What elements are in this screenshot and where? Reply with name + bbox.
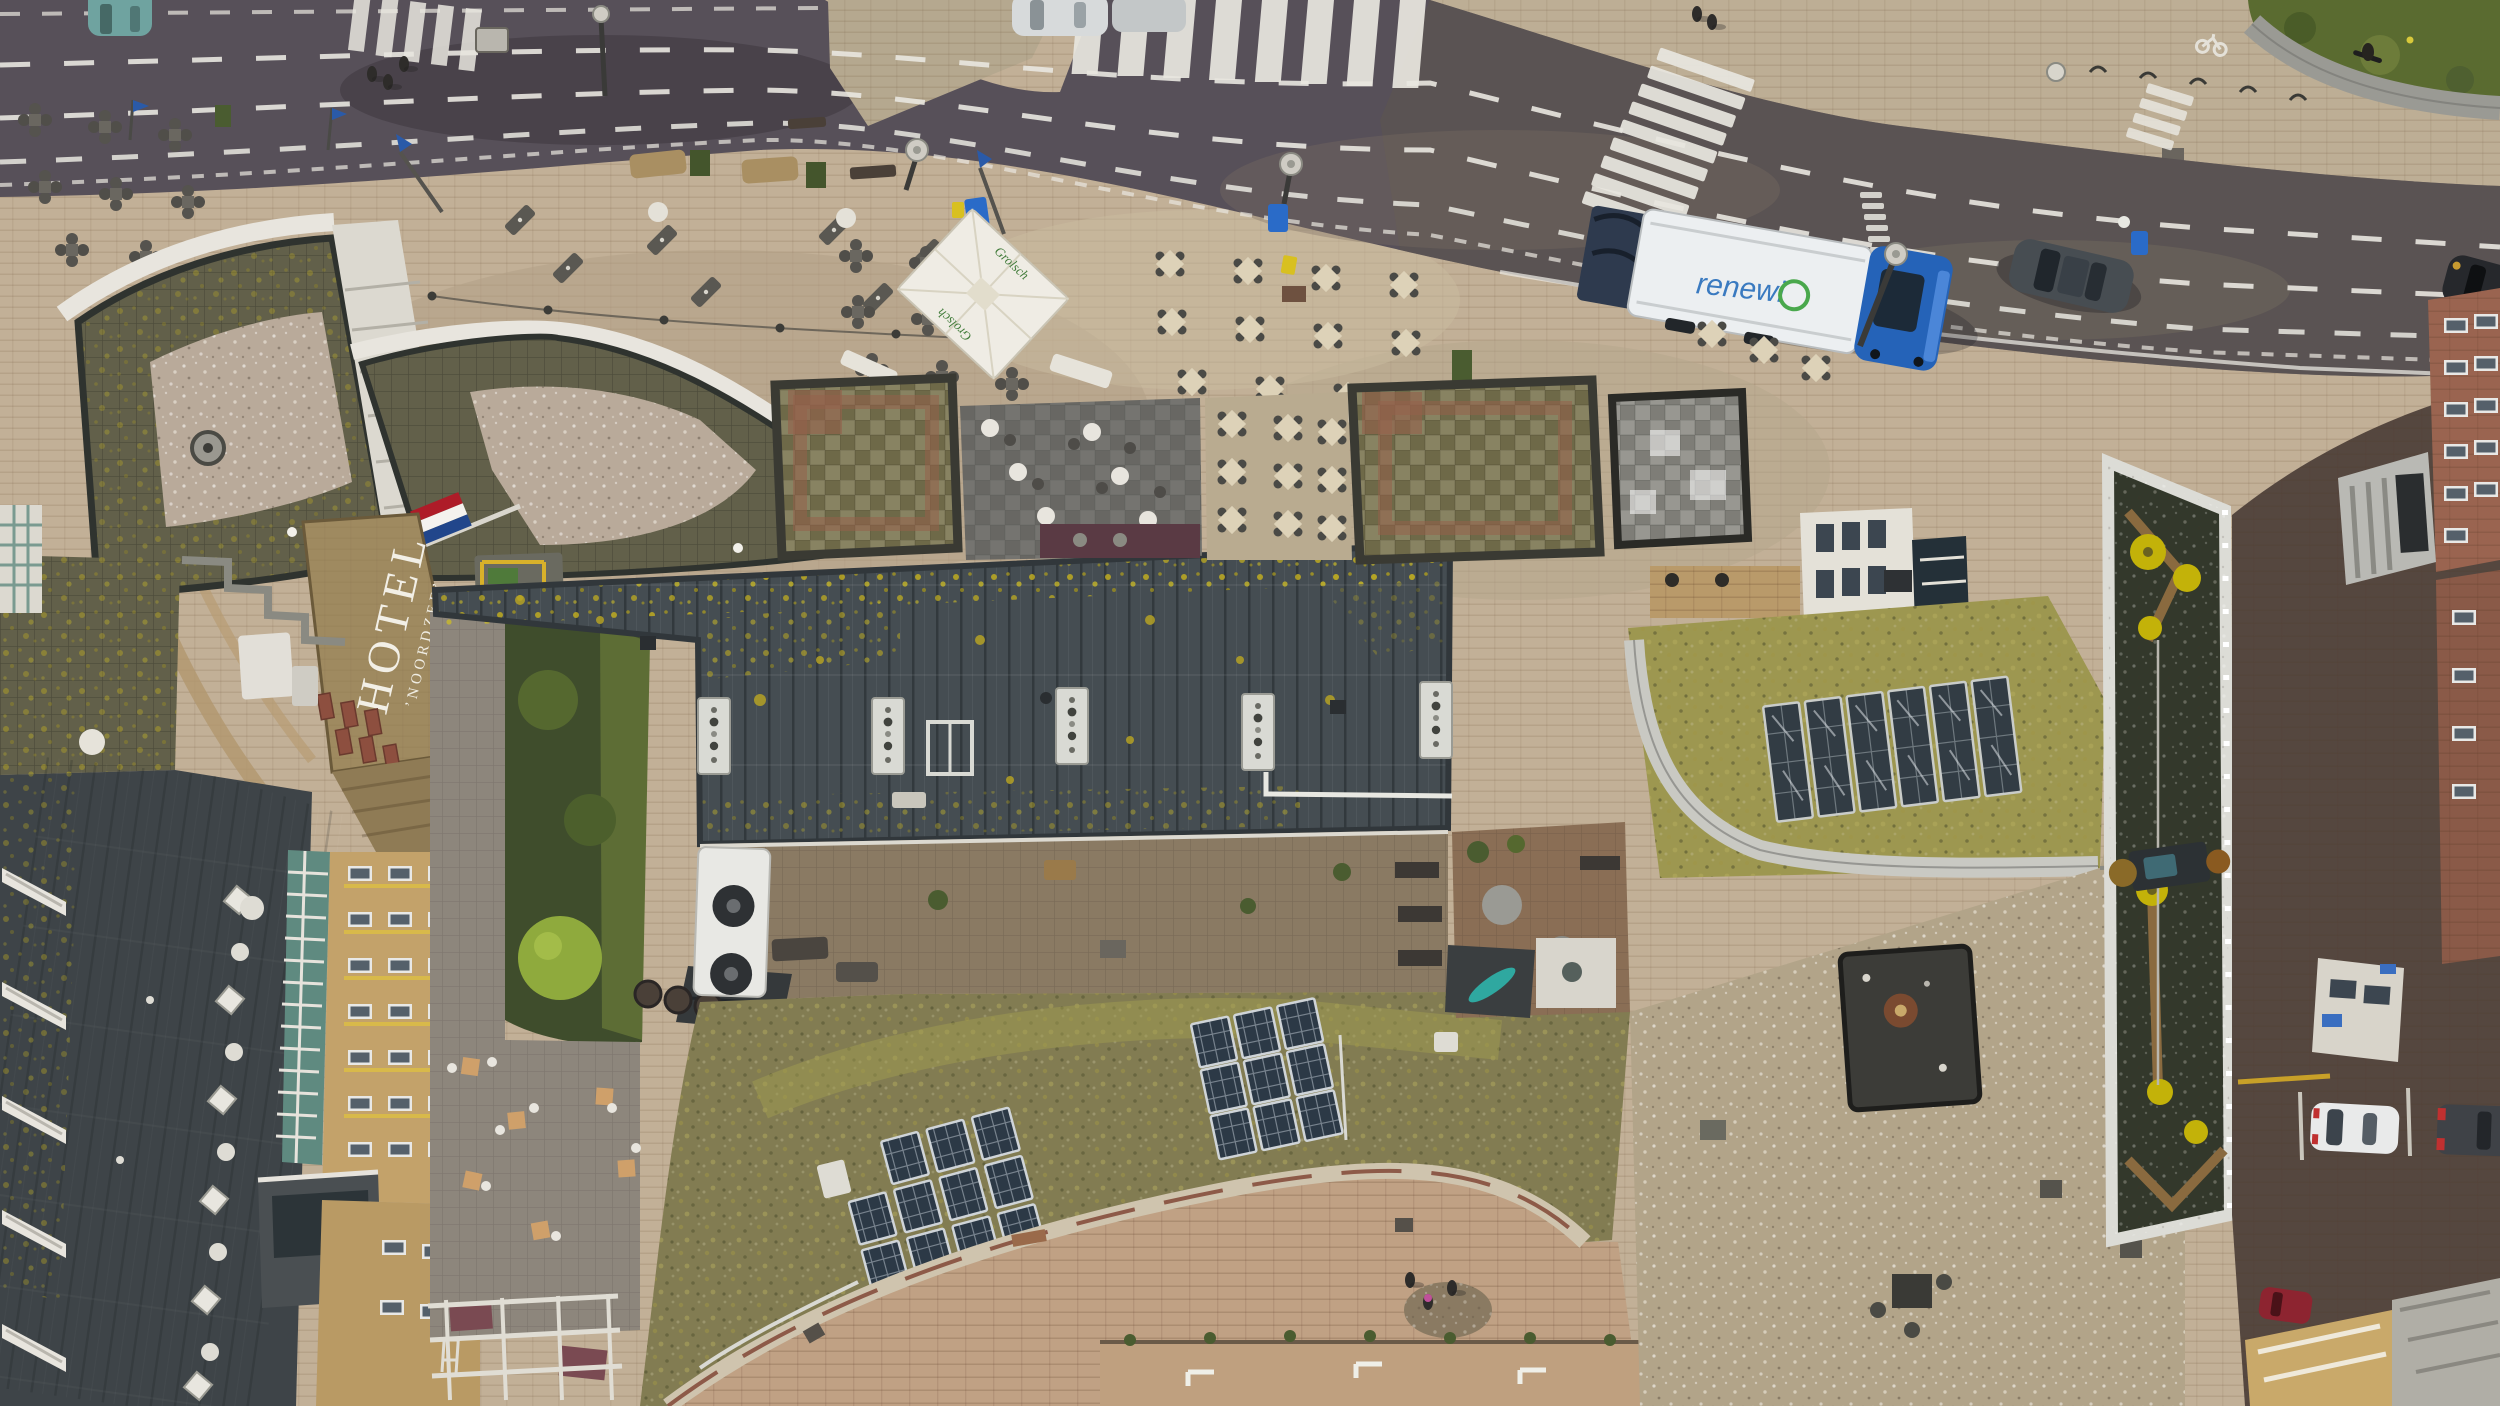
white-parked-car xyxy=(2309,1102,2399,1155)
roof-hatch-1 xyxy=(698,698,730,774)
tilted-green-roof xyxy=(2106,462,2232,1240)
blue-bin-2 xyxy=(1268,204,1288,232)
brick-facade-b-texture xyxy=(2436,570,2500,964)
bright-tree-highlight xyxy=(534,932,562,960)
terrace-planter-1 xyxy=(928,890,948,910)
olive-roof-1-red-corner xyxy=(788,390,842,434)
silver-car-trailer xyxy=(1112,0,1186,32)
sedum-vent-box-2 xyxy=(1434,1032,1458,1052)
maroon-mat-2 xyxy=(559,1346,608,1381)
roof-vent-dark-1 xyxy=(640,636,656,650)
utility-cabinet xyxy=(476,28,508,52)
roof-vent-dark-2 xyxy=(1330,700,1346,714)
wood-table xyxy=(1044,860,1076,880)
terrace-box-1 xyxy=(1100,940,1126,958)
slate-roof-terrace xyxy=(960,398,1202,560)
courtyard-building xyxy=(1100,1330,1640,1406)
silver-car xyxy=(1012,0,1186,36)
grey-checker-texture xyxy=(1612,392,1748,545)
courtyard-person-2 xyxy=(1423,1294,1433,1310)
terrace-bench-dark-3 xyxy=(1398,950,1442,966)
facade-b-window xyxy=(2452,668,2476,683)
garden-tree-2 xyxy=(564,794,616,846)
terrace-bench-dark-1 xyxy=(1395,862,1439,878)
solar-array-right xyxy=(1191,998,1343,1159)
playground-mat xyxy=(488,568,518,584)
aerial-photo-stage: renewi xyxy=(0,0,2500,1406)
roof-vent-core xyxy=(203,443,213,453)
roof-hatch-5 xyxy=(1420,682,1452,758)
cream-roof-terrace xyxy=(1205,392,1352,560)
aerial-photo: renewi xyxy=(0,0,2500,1406)
courtyard-drain-2 xyxy=(1395,1218,1413,1232)
terrace-plant-1 xyxy=(1467,841,1489,863)
terrace-band-grid xyxy=(700,830,1448,1002)
yellow-bin-1 xyxy=(952,202,964,218)
white-bag xyxy=(2118,216,2130,228)
round-table-2 xyxy=(836,208,856,228)
wood-lounger-2 xyxy=(741,156,799,184)
outdoor-sofa-1 xyxy=(771,937,828,962)
planter xyxy=(215,105,231,127)
facade-b-window xyxy=(2452,726,2476,741)
grass-flowers-2 xyxy=(2407,37,2414,44)
terrace-planter-3 xyxy=(1333,863,1351,881)
teal-hatchback xyxy=(88,0,152,36)
garden-tree-1 xyxy=(518,670,578,730)
blue-sign-2 xyxy=(2380,964,2396,974)
roof-hatch-4 xyxy=(1242,694,1274,770)
planter-3 xyxy=(806,162,826,188)
terrace-plant-2 xyxy=(1507,835,1525,853)
seagull-2 xyxy=(733,543,743,553)
door-mat xyxy=(1282,286,1306,302)
wall-post-1 xyxy=(1665,573,1679,587)
roof-drain xyxy=(1040,692,1052,704)
facade-b-window xyxy=(2452,784,2476,799)
planter-2 xyxy=(690,150,710,176)
dark-van xyxy=(2436,1104,2500,1156)
roof-hatch-3 xyxy=(1056,688,1088,764)
blue-sign-1 xyxy=(2322,1014,2342,1027)
litter-bin xyxy=(2047,63,2065,81)
grey-pitched-roof xyxy=(2392,1278,2500,1406)
round-table xyxy=(648,202,668,222)
terrace-planter-2 xyxy=(1240,898,1256,914)
outdoor-sofa-2 xyxy=(836,962,878,982)
facade-window xyxy=(380,1300,404,1315)
green-roof-vent xyxy=(1884,570,1912,592)
terrace-bench xyxy=(1580,856,1620,870)
grey-cylinder-vent xyxy=(1562,962,1582,982)
lamp-core-1 xyxy=(2143,547,2153,557)
left-skylight-frame xyxy=(0,505,42,613)
white-roof-box-2 xyxy=(292,666,318,706)
wall-post-2 xyxy=(1715,573,1729,587)
penthouse-block xyxy=(1840,946,1981,1111)
roof-hatch-2 xyxy=(872,698,904,774)
grass-shrub-3 xyxy=(2446,66,2474,94)
concrete-doorway xyxy=(2395,473,2428,553)
facade-window xyxy=(382,1240,406,1255)
roof-bench-white xyxy=(892,792,926,808)
round-table-grey xyxy=(1482,885,1522,925)
olive-roof-2-red-corner xyxy=(1362,392,1422,434)
dome-vent xyxy=(79,729,105,755)
facade-b-window xyxy=(2452,610,2476,625)
shopfront-building xyxy=(2312,958,2404,1062)
white-roof-box xyxy=(238,632,294,699)
seagull-1 xyxy=(287,527,297,537)
ac-unit xyxy=(693,847,770,997)
bright-tree xyxy=(518,916,602,1000)
blue-bin-3 xyxy=(2131,231,2148,255)
terrace-bench-dark-2 xyxy=(1398,906,1442,922)
